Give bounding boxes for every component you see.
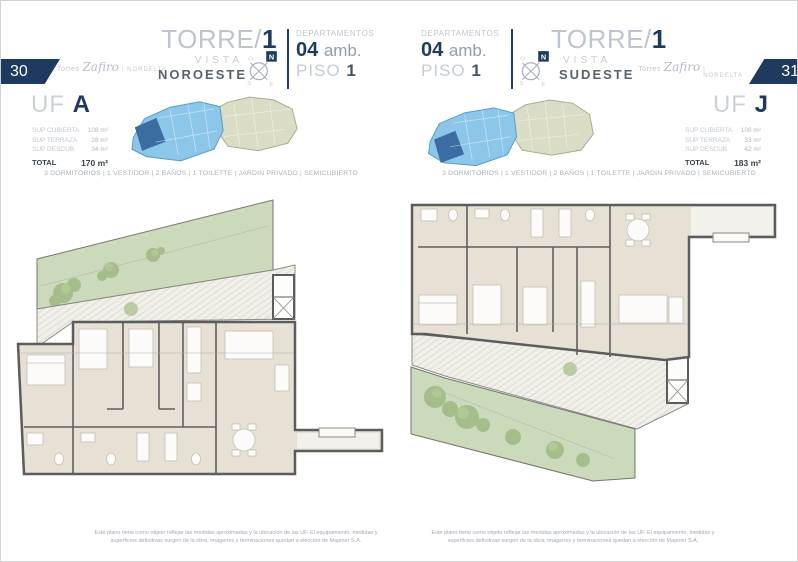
brand-suffix: | NORDELTA <box>703 67 743 79</box>
surface-total-value: 183 m² <box>734 158 761 168</box>
page-number-right: 31 <box>781 63 798 81</box>
planter <box>319 428 355 437</box>
surface-row: SUP CUBIERTA 108 m² <box>685 126 761 136</box>
ambientes-line: 04 amb. <box>421 39 499 62</box>
compass-north-label: N <box>541 52 546 61</box>
header-divider-right <box>511 29 513 89</box>
surface-value: 33 m² <box>744 136 761 146</box>
piso-label: PISO <box>421 61 466 80</box>
surface-total-value: 170 m² <box>81 158 108 168</box>
surface-label: SUP TERRAZA <box>685 136 730 146</box>
departamentos-block-left: DEPARTAMENTOS 04 amb. PISO 1 <box>296 29 374 80</box>
features-line-left: 3 DORMITORIOS | 1 VESTIDOR | 2 BAÑOS | 1… <box>21 170 381 177</box>
disclaimer-right: Este plano tiene como objeto reflejar la… <box>423 530 723 546</box>
surface-label: SUP CUBIERTA <box>685 126 732 136</box>
departamentos-label: DEPARTAMENTOS <box>421 29 499 38</box>
uf-label: UF <box>31 91 65 118</box>
surface-row: SUP TERRAZA 33 m² <box>685 136 761 146</box>
balcony-area <box>691 207 773 235</box>
ambientes-count: 04 <box>421 39 443 61</box>
compass-icon: N O S E <box>517 49 551 87</box>
brand-logo-right: Torres Zafiro | NORDELTA <box>641 60 743 79</box>
piso-line: PISO 1 <box>421 62 499 80</box>
brand-prefix: Torres <box>638 66 660 73</box>
brand-script: Zafiro <box>664 60 700 74</box>
surface-value: 108 m² <box>741 126 761 136</box>
ambientes-unit: amb. <box>449 41 487 60</box>
piso-label: PISO <box>296 61 341 80</box>
tower-prefix: TORRE/ <box>551 24 652 54</box>
surface-total-label: TOTAL <box>32 158 56 168</box>
surface-value: 28 m² <box>91 136 108 146</box>
compass-south-label: S <box>247 81 251 87</box>
compass-north-label: N <box>269 52 274 61</box>
piso-line: PISO 1 <box>296 62 374 80</box>
uf-letter: J <box>755 91 769 118</box>
surface-label: SUP DESCUB <box>32 145 74 155</box>
header-divider-left <box>287 29 289 89</box>
unit-title-right: UF J <box>691 91 769 119</box>
surface-value: 34 m² <box>91 145 108 155</box>
brand-script: Zafiro <box>82 60 118 74</box>
uf-label: UF <box>713 91 747 118</box>
keyplan-thumbnail-left <box>125 87 305 169</box>
ambientes-count: 04 <box>296 39 318 61</box>
page-number-tab-left: 30 <box>1 59 60 84</box>
surface-total-row: TOTAL 183 m² <box>685 158 761 168</box>
surface-label: SUP CUBIERTA <box>32 126 79 136</box>
surface-value: 42 m² <box>744 145 761 155</box>
surface-row: SUP DESCUB 34 m² <box>32 145 108 155</box>
piso-number: 1 <box>346 61 356 80</box>
tower-number: 1 <box>652 24 667 54</box>
brochure-sheet: 30 Torres Zafiro | NORDELTA TORRE/1 VIST… <box>0 0 798 562</box>
surface-label: SUP DESCUB <box>685 145 727 155</box>
ambientes-line: 04 amb. <box>296 39 374 62</box>
planter <box>713 233 749 242</box>
stairs-icon <box>273 275 294 319</box>
surface-total-row: TOTAL 170 m² <box>32 158 108 168</box>
surface-label: SUP TERRAZA <box>32 136 77 146</box>
features-line-right: 3 DORMITORIOS | 1 VESTIDOR | 2 BAÑOS | 1… <box>419 170 779 177</box>
unit-title-left: UF A <box>31 91 91 119</box>
departamentos-label: DEPARTAMENTOS <box>296 29 374 38</box>
surface-total-label: TOTAL <box>685 158 709 168</box>
surface-row: SUP DESCUB 42 m² <box>685 145 761 155</box>
ambientes-unit: amb. <box>324 41 362 60</box>
departamentos-block-right: DEPARTAMENTOS 04 amb. PISO 1 <box>421 29 499 80</box>
terrace-tree <box>124 302 138 316</box>
keyplan-thumbnail-right <box>418 85 600 177</box>
terrace-tree <box>563 362 577 376</box>
keyplan-tower2-mass <box>507 99 593 157</box>
stairs-icon <box>667 357 688 403</box>
page-number-left: 30 <box>10 63 28 81</box>
surface-value: 108 m² <box>88 126 108 136</box>
compass-west-label: O <box>520 57 525 63</box>
surface-row: SUP CUBIERTA 108 m² <box>32 126 108 136</box>
page-number-tab-right: 31 <box>749 59 798 84</box>
tower-title: TORRE/1 <box>551 26 691 52</box>
brand-prefix: Torres <box>57 66 79 73</box>
surface-row: SUP TERRAZA 28 m² <box>32 136 108 146</box>
compass-icon: N O S E <box>245 49 279 87</box>
piso-number: 1 <box>471 61 481 80</box>
compass-west-label: O <box>248 57 253 63</box>
floorplan-uf-j <box>405 197 790 505</box>
disclaimer-left: Este plano tiene como objeto reflejar la… <box>91 530 381 546</box>
uf-letter: A <box>73 91 91 118</box>
surface-table-right: SUP CUBIERTA 108 m² SUP TERRAZA 33 m² SU… <box>685 126 761 168</box>
surface-table-left: SUP CUBIERTA 108 m² SUP TERRAZA 28 m² SU… <box>32 126 108 168</box>
floorplan-uf-a <box>11 197 396 505</box>
